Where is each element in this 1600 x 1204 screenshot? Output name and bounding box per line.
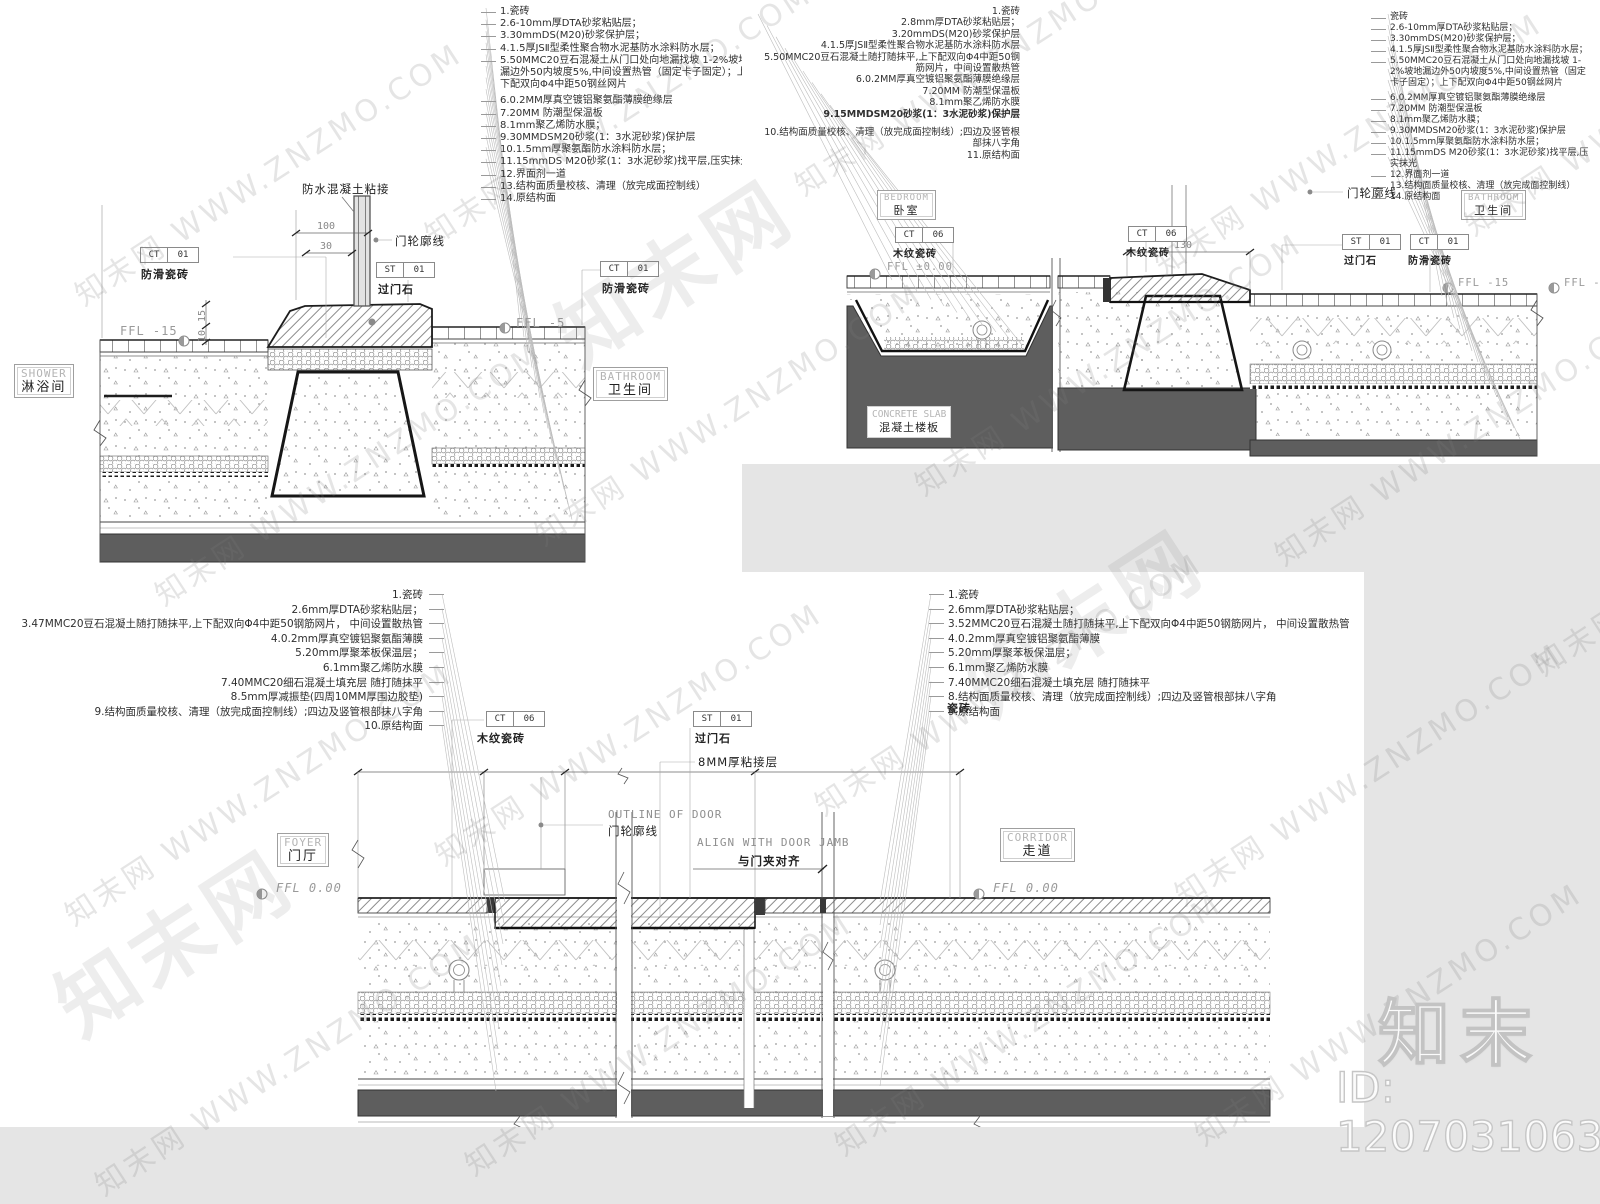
notes-shower-bathroom: 1.瓷砖2.6-10mm厚DTA砂浆粘贴层；3.30mmDS(M20)砂浆保护层… [500, 6, 752, 205]
finish-tag-ct06-a: CT06 [895, 227, 954, 243]
dim-30: 30 [320, 241, 332, 252]
room-label-corridor: CORRIDOR 走道 [1000, 828, 1075, 862]
finish-tag-ct06: CT06 [486, 711, 545, 727]
level-mark-ffl-5: FFL -5 [516, 316, 565, 330]
level-mark-ffl-15: FFL -15 [120, 324, 178, 338]
room-label-bedroom: BEDROOM 卧室 [877, 190, 936, 220]
finish-tag-st01: ST01 [376, 262, 435, 278]
finish-tag-st01: ST01 [1342, 234, 1401, 250]
sheet-bedroom-bathroom-detail: 1.瓷砖2.8mm厚DTA砂浆粘贴层；3.20mmDS(M20)砂浆保护层4.1… [742, 0, 1600, 464]
callout-door-outline: 门轮廓线 [395, 233, 445, 249]
callout-outline-of-door-zh: 门轮廓线 [608, 823, 658, 839]
notes-corridor: 1.瓷砖2.6mm厚DTA砂浆粘贴层；3.52MMC20豆石混凝土随打随抹平,上… [948, 588, 1360, 719]
dim-15: 15 [197, 310, 208, 322]
callout-door-outline: 门轮廓线 [1347, 185, 1397, 201]
finish-tag-label: 木纹瓷砖 [893, 245, 937, 260]
label-bond-layer: 8MM厚粘接层 [698, 754, 778, 770]
level-mark-ffl-000: FFL ±0.00 [887, 261, 953, 273]
finish-tag-label: 过门石 [1344, 252, 1377, 267]
dim-100: 100 [317, 221, 335, 232]
sheet-shower-bathroom-detail: 1.瓷砖2.6-10mm厚DTA砂浆粘贴层；3.30mmDS(M20)砂浆保护层… [0, 0, 742, 572]
room-label-shower: SHOWER 淋浴间 [14, 364, 74, 398]
finish-tag-ct01-left: CT01 [140, 247, 199, 263]
callout-waterproof-concrete: 防水混凝土粘接 [302, 181, 390, 197]
finish-tag-st01: ST01 [693, 711, 752, 727]
finish-tag-label: 过门石 [378, 281, 414, 297]
notes-foyer: 1.瓷砖2.6mm厚DTA砂浆粘贴层；3.47MMC20豆石混凝土随打随抹平,上… [0, 588, 423, 734]
finish-tag-ct01: CT01 [1410, 234, 1469, 250]
dim-10: 10 [197, 330, 208, 342]
label-tile: 瓷砖 [947, 700, 971, 716]
finish-tag-label: 防滑瓷砖 [602, 280, 650, 296]
level-mark-ffl-15-a: FFL -15 [1458, 277, 1509, 289]
canvas: { "page": {"background":"#e5e5e5","sheet… [0, 0, 1600, 1127]
finish-tag-ct01-right: CT01 [600, 261, 659, 277]
image-id: ID: 1207031063 [1336, 1063, 1600, 1161]
room-label-foyer: FOYER 门厅 [277, 833, 329, 867]
finish-tag-label: 防滑瓷砖 [1408, 252, 1452, 267]
callout-align-door-jamb-en: ALIGN WITH DOOR JAMB [697, 836, 849, 849]
level-mark-ffl-15-b: FFL -15 [1564, 277, 1600, 289]
finish-tag-label: 木纹瓷砖 [477, 730, 525, 746]
level-mark-ffl-000-right: FFL 0.00 [993, 881, 1059, 895]
callout-outline-of-door-en: OUTLINE OF DOOR [608, 808, 722, 821]
sheet-foyer-corridor-detail: 1.瓷砖2.6mm厚DTA砂浆粘贴层；3.47MMC20豆石混凝土随打随抹平,上… [0, 572, 1364, 1127]
level-mark-ffl-000-left: FFL 0.00 [276, 881, 342, 895]
callout-align-door-jamb-zh: 与门夹对齐 [738, 853, 801, 869]
room-label-bathroom2: BATHROOM 卫生间 [1461, 190, 1526, 220]
finish-tag-label: 防滑瓷砖 [141, 266, 189, 282]
notes-bathroom-right: 瓷砖2.6-10mm厚DTA砂浆粘贴层；3.30mmDS(M20)砂浆保护层；4… [1390, 12, 1590, 203]
dim-130: 130 [1174, 240, 1192, 251]
label-concrete-slab: CONCRETE SLAB 混凝土楼板 [867, 406, 951, 438]
notes-bedroom-bathroom: 1.瓷砖2.8mm厚DTA砂浆粘贴层；3.20mmDS(M20)砂浆保护层4.1… [755, 6, 1020, 161]
finish-tag-label: 过门石 [695, 730, 731, 746]
room-label-bathroom: BATHROOM 卫生间 [593, 367, 668, 401]
finish-tag-label: 木纹瓷砖 [1126, 244, 1170, 259]
